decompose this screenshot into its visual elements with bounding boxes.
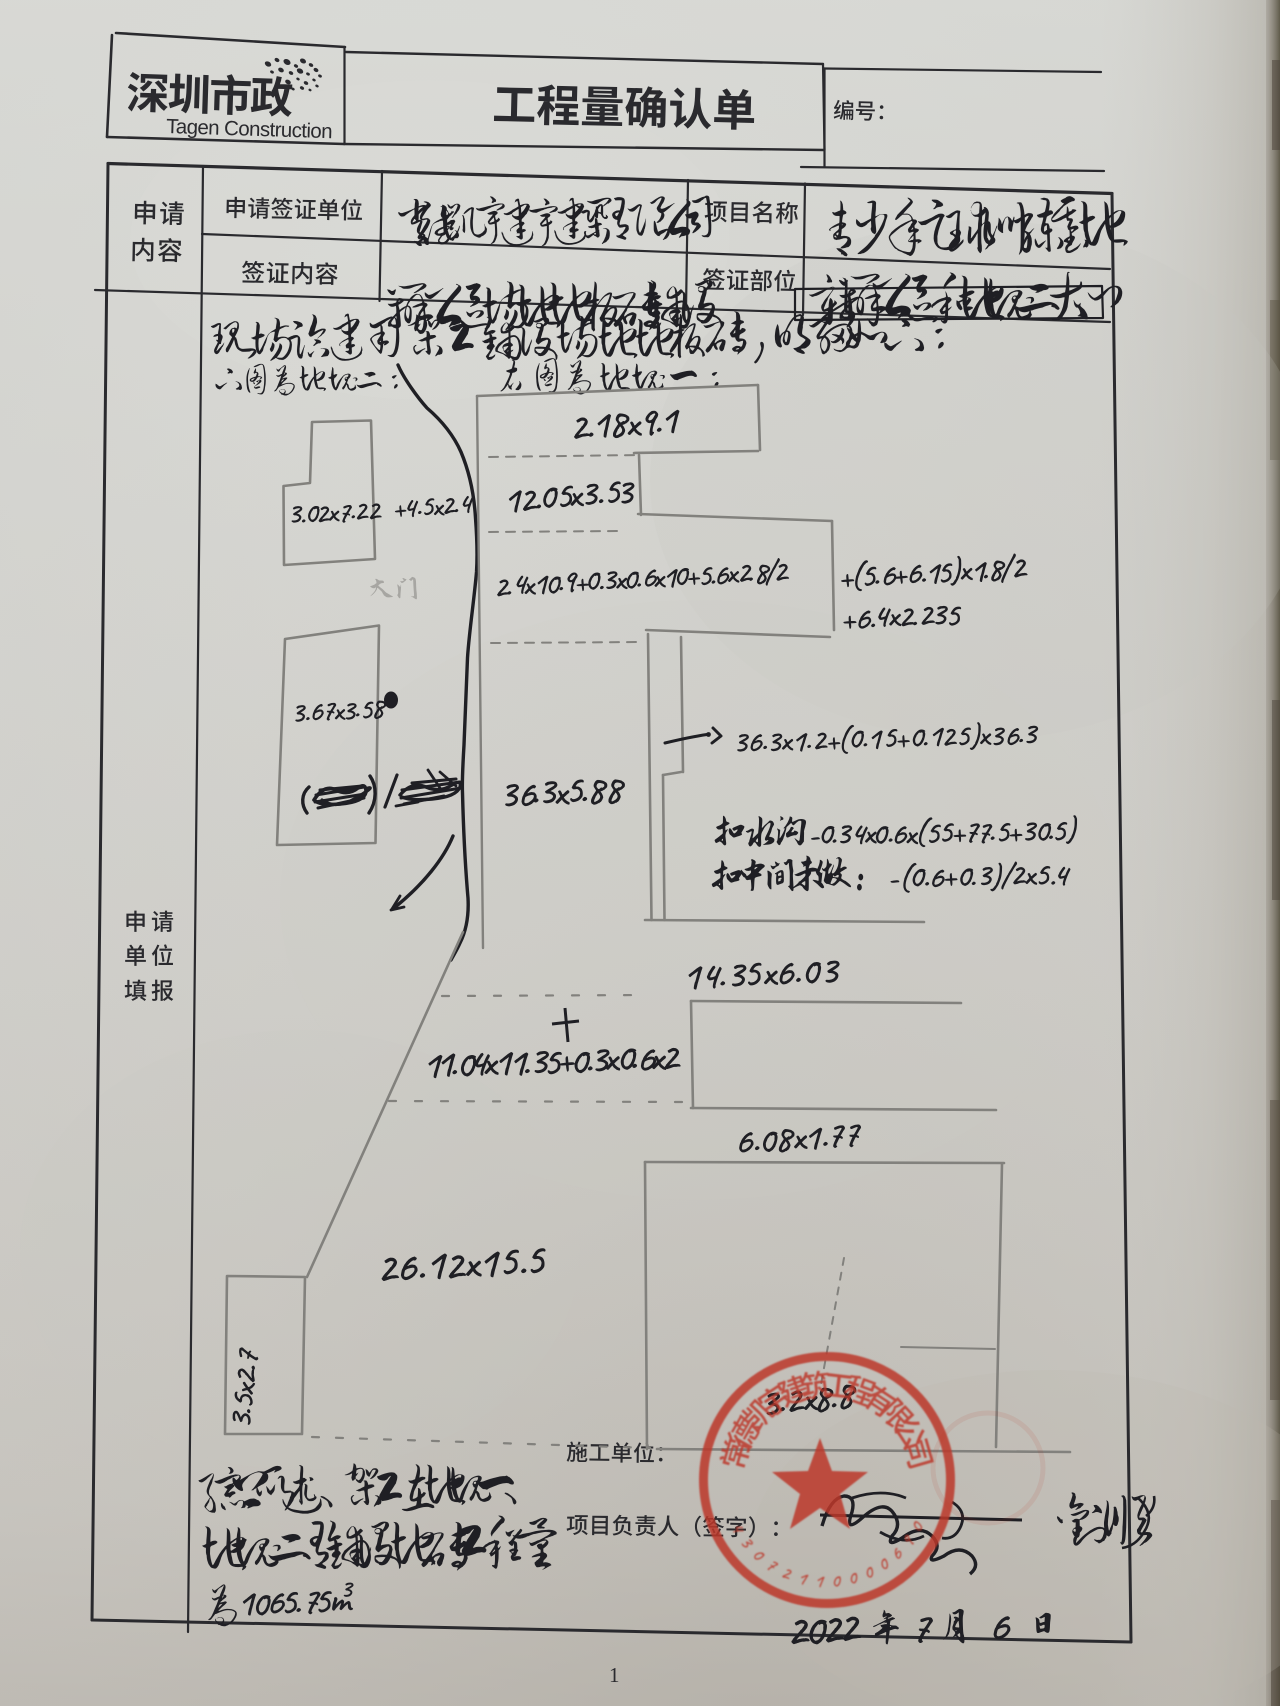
- svg-text:1: 1: [609, 1663, 620, 1687]
